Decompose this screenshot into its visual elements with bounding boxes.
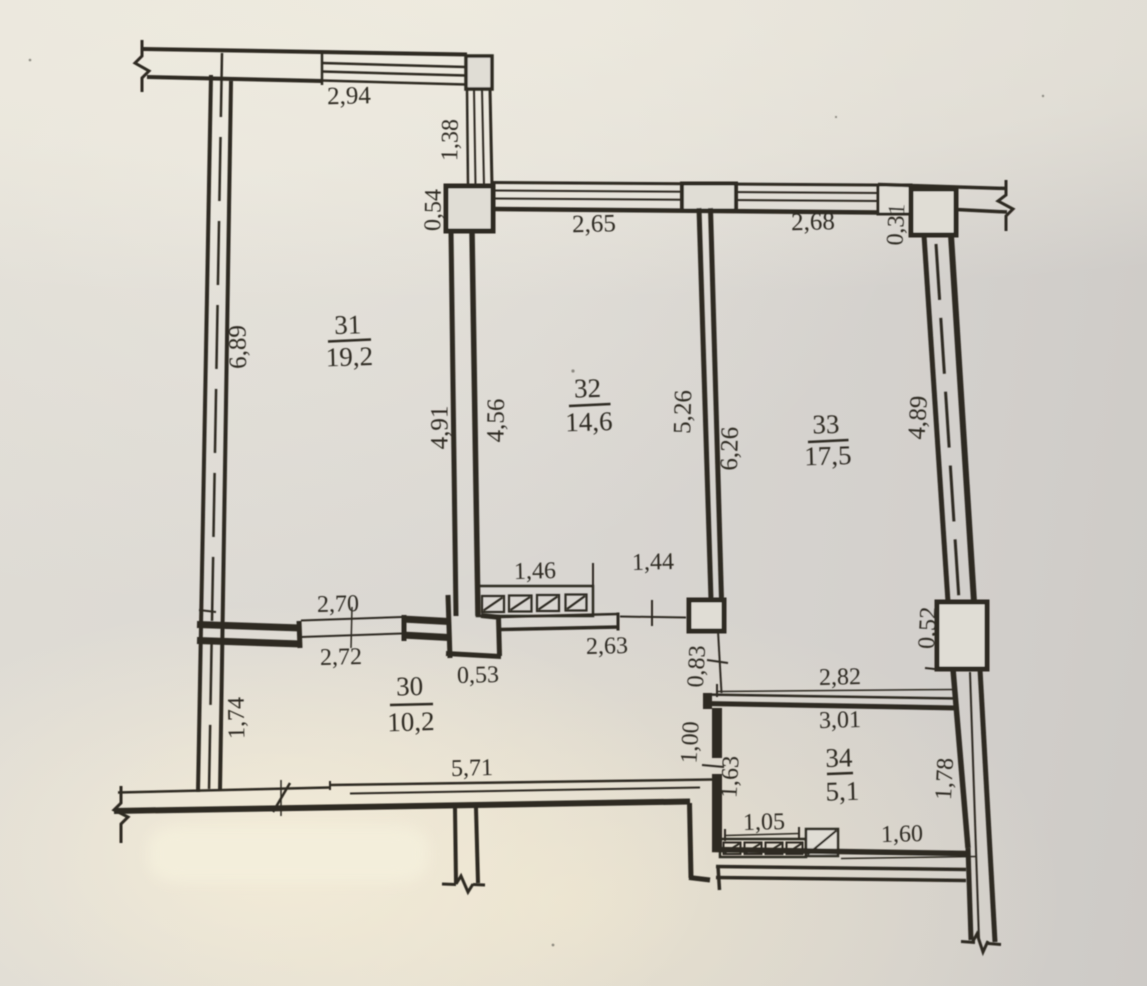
svg-text:2,82: 2,82 <box>819 664 862 691</box>
svg-text:3,01: 3,01 <box>819 707 862 734</box>
svg-text:2,72: 2,72 <box>320 644 363 671</box>
svg-text:17,5: 17,5 <box>804 440 852 471</box>
svg-text:0,54: 0,54 <box>420 189 447 231</box>
svg-text:1,63: 1,63 <box>716 755 744 798</box>
svg-text:5,26: 5,26 <box>669 390 697 434</box>
svg-text:1,05: 1,05 <box>743 809 786 836</box>
svg-text:0,83: 0,83 <box>683 645 711 688</box>
svg-text:6,89: 6,89 <box>224 325 252 369</box>
svg-text:2,65: 2,65 <box>572 210 616 238</box>
svg-text:30: 30 <box>396 671 424 702</box>
svg-text:32: 32 <box>574 373 602 404</box>
svg-text:4,91: 4,91 <box>427 406 454 450</box>
svg-text:34: 34 <box>825 742 853 773</box>
svg-text:14,6: 14,6 <box>565 406 613 437</box>
svg-text:2,68: 2,68 <box>791 208 835 236</box>
svg-text:0,31: 0,31 <box>882 203 910 246</box>
svg-text:1,46: 1,46 <box>514 558 557 585</box>
svg-text:10,2: 10,2 <box>387 706 435 737</box>
svg-text:33: 33 <box>812 409 840 440</box>
svg-text:1,00: 1,00 <box>676 721 704 764</box>
svg-text:5,71: 5,71 <box>451 755 494 782</box>
svg-text:4,56: 4,56 <box>482 398 510 442</box>
svg-text:1,78: 1,78 <box>931 757 959 800</box>
svg-text:4,89: 4,89 <box>903 395 933 440</box>
svg-text:2,70: 2,70 <box>317 591 360 618</box>
svg-text:31: 31 <box>334 309 362 340</box>
svg-text:19,2: 19,2 <box>325 341 373 372</box>
svg-text:1,38: 1,38 <box>437 119 464 161</box>
svg-text:2,94: 2,94 <box>327 82 372 110</box>
svg-text:1,44: 1,44 <box>632 549 675 576</box>
svg-text:1,74: 1,74 <box>224 697 251 739</box>
svg-text:5,1: 5,1 <box>825 776 860 807</box>
svg-text:2,63: 2,63 <box>586 633 629 660</box>
svg-text:6,26: 6,26 <box>716 426 744 470</box>
svg-text:0,52: 0,52 <box>914 606 942 649</box>
svg-text:1,60: 1,60 <box>881 821 924 848</box>
svg-text:0,53: 0,53 <box>457 662 500 689</box>
